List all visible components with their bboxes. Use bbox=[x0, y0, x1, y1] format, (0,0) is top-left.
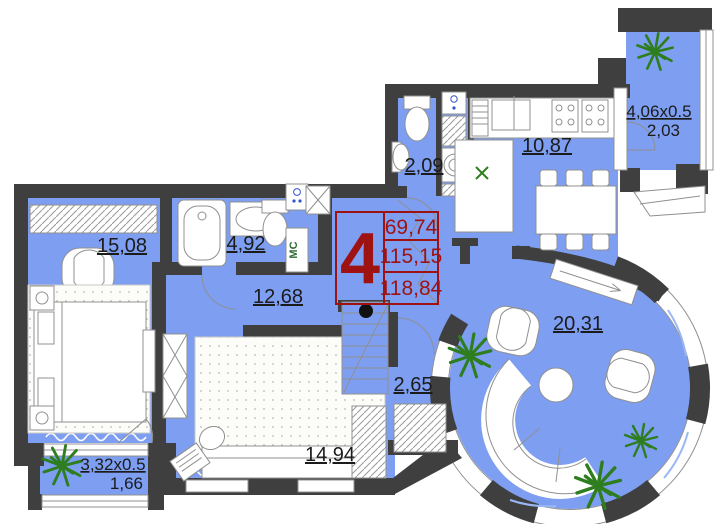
label-balcony-bottom-dims: 3,32x0.5 bbox=[80, 455, 145, 474]
bedroom2-wardrobe bbox=[352, 406, 386, 478]
label-bedroom-area: 15,08 bbox=[97, 235, 147, 257]
window-sill bbox=[634, 186, 705, 216]
label-living-area: 20,31 bbox=[553, 313, 603, 335]
stamp-apartment-area: 115,15 bbox=[380, 245, 443, 268]
floor-plan-drawing: МС bbox=[0, 0, 718, 524]
kitchen-balcony-window bbox=[614, 88, 627, 170]
hall-wardrobe bbox=[163, 334, 187, 418]
bedroom-nightstand-bottom bbox=[30, 406, 54, 430]
label-balcony-top-area: 2,03 bbox=[647, 121, 680, 140]
bedroom-nightstand-top bbox=[30, 286, 54, 310]
washing-machine bbox=[286, 184, 308, 210]
label-balcony-top-dims: 4,06x0.5 bbox=[626, 102, 691, 121]
apartment-stamp: 4 69,74 115,15 118,84 bbox=[336, 212, 443, 304]
corridor-closet bbox=[394, 404, 446, 452]
hall-mirror bbox=[143, 330, 155, 392]
garbage-chute: МС bbox=[286, 228, 308, 272]
label-kitchen-area: 10,87 bbox=[522, 135, 572, 157]
label-corridor-area: 2,65 bbox=[394, 374, 433, 396]
bedroom-wardrobe bbox=[30, 205, 157, 233]
garbage-chute-label: МС bbox=[288, 241, 300, 258]
label-bathroom-area: 4,92 bbox=[227, 233, 266, 255]
bedroom-bed bbox=[34, 302, 146, 422]
label-bedroom2-area: 14,94 bbox=[305, 444, 355, 466]
bathtub bbox=[178, 200, 226, 266]
label-wc-area: 2,09 bbox=[405, 155, 444, 177]
kitchen-sink bbox=[492, 100, 514, 130]
bedroom2-window-right bbox=[298, 480, 354, 492]
kitchen-counter bbox=[470, 96, 614, 138]
bathroom-toilet bbox=[262, 200, 288, 246]
wc-toilet bbox=[404, 96, 430, 141]
stamp-room-count: 4 bbox=[340, 219, 380, 299]
bedroom2-window-left bbox=[186, 480, 248, 492]
stair-section-mark bbox=[359, 304, 373, 318]
stamp-living-area: 69,74 bbox=[385, 216, 438, 239]
vent-shaft bbox=[306, 186, 330, 214]
label-hallway-area: 12,68 bbox=[253, 286, 303, 308]
staircase bbox=[342, 302, 388, 394]
stamp-total-area: 118,84 bbox=[380, 277, 443, 300]
dining-table bbox=[536, 170, 616, 250]
label-balcony-bottom-area: 1,66 bbox=[110, 474, 143, 493]
living-round-table bbox=[539, 368, 573, 402]
pantry bbox=[455, 140, 513, 232]
floor-plan-canvas: МС bbox=[0, 0, 718, 524]
